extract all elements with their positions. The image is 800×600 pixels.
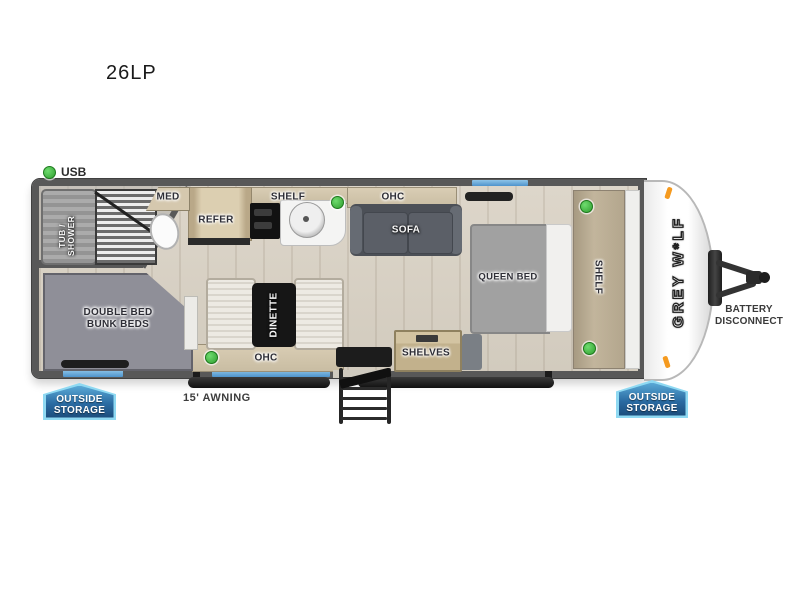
med-label: MED bbox=[156, 192, 179, 203]
outside-storage-badge: OUTSIDE STORAGE bbox=[616, 380, 688, 418]
queen-bed-label: QUEEN BED bbox=[478, 272, 537, 283]
step-rung bbox=[341, 407, 387, 410]
sink-drain-icon bbox=[303, 216, 309, 222]
bedroom-shelf-label: SHELF bbox=[593, 260, 604, 294]
brand-logo: GREY W*LF bbox=[669, 182, 689, 362]
dinette-bench bbox=[206, 278, 256, 350]
usb-indicator-icon bbox=[580, 200, 593, 213]
awning-label: 15' AWNING bbox=[183, 392, 251, 404]
dinette-bench bbox=[294, 278, 344, 350]
shelves-slot bbox=[416, 335, 438, 342]
stove-burner bbox=[254, 222, 272, 229]
usb-legend-label: USB bbox=[61, 165, 86, 179]
queen-bed-pillows bbox=[546, 224, 572, 332]
entry-steps bbox=[336, 368, 394, 426]
refer-label: REFER bbox=[198, 215, 233, 226]
front-wardrobe-strip bbox=[625, 190, 640, 369]
sofa-ohc-label: OHC bbox=[381, 192, 404, 203]
step-rung bbox=[341, 397, 387, 400]
dinette-ohc-label: OHC bbox=[254, 353, 277, 364]
page-title: 26LP bbox=[106, 62, 157, 85]
step-rung bbox=[341, 387, 387, 390]
counter-strip bbox=[188, 238, 250, 245]
shelves-label: SHELVES bbox=[402, 348, 450, 359]
awning-bar bbox=[188, 377, 330, 388]
outside-storage-label: OUTSIDE STORAGE bbox=[43, 394, 116, 416]
outside-storage-badge: OUTSIDE STORAGE bbox=[43, 383, 116, 420]
kitchen-shelf-label: SHELF bbox=[271, 192, 305, 203]
usb-indicator-icon bbox=[43, 166, 56, 179]
usb-indicator-icon bbox=[205, 351, 218, 364]
floorplan-canvas: 26LP USB TUB / SHOWER MED DOUBLE BED BUN… bbox=[0, 0, 800, 600]
stove-burner bbox=[254, 209, 272, 216]
sofa-label: SOFA bbox=[392, 225, 420, 236]
tub-shower-label: TUB / SHOWER bbox=[58, 216, 76, 256]
bunk-side-cabinet bbox=[184, 296, 198, 350]
hitch-ball-icon bbox=[759, 272, 770, 283]
usb-indicator-icon bbox=[583, 342, 596, 355]
battery-disconnect-label: BATTERY DISCONNECT bbox=[702, 304, 796, 328]
tv-unit bbox=[465, 192, 513, 201]
door-mat bbox=[336, 347, 392, 367]
outside-storage-label: OUTSIDE STORAGE bbox=[616, 392, 688, 414]
step-rung bbox=[341, 417, 387, 420]
bunk-storage-bar bbox=[61, 360, 129, 368]
bunk-bed-label: DOUBLE BED BUNK BEDS bbox=[83, 307, 152, 331]
dinette-label: DINETTE bbox=[269, 293, 280, 338]
open-door-panel bbox=[339, 368, 392, 389]
window bbox=[63, 370, 123, 377]
sofa-armrest bbox=[350, 206, 362, 254]
window bbox=[472, 180, 528, 186]
usb-indicator-icon bbox=[331, 196, 344, 209]
